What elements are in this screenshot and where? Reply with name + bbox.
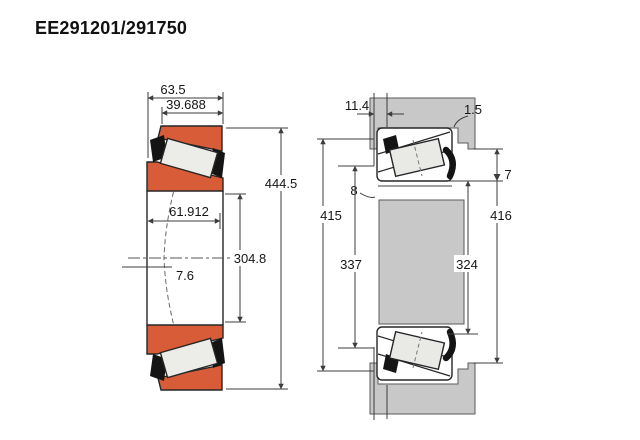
mounted-bearing-top xyxy=(377,128,453,181)
mounting-arrangement: 11.4 1.5 8 415 337 xyxy=(316,93,517,420)
mounted-bearing-bottom xyxy=(377,327,453,380)
bearing-drawing: 63.5 39.688 61.912 304.8 444.5 7.6 xyxy=(0,0,640,440)
dim-housing-bore: 415 xyxy=(320,208,342,223)
dim-bore-diameter: 304.8 xyxy=(234,251,267,266)
dim-cone-width: 61.912 xyxy=(169,204,209,219)
dim-outer-diameter: 444.5 xyxy=(265,176,298,191)
bearing-datasheet-page: EE291201/291750 xyxy=(0,0,640,440)
dim-shaft-shoulder: 337 xyxy=(340,257,362,272)
dim-cup-width: 39.688 xyxy=(166,97,206,112)
dim-center-offset: 7.6 xyxy=(176,268,194,283)
page-title: EE291201/291750 xyxy=(35,18,187,39)
leader-shaft-fillet xyxy=(360,193,375,198)
dim-housing-fillet: 1.5 xyxy=(464,102,482,117)
dim-arrow-clearance xyxy=(494,174,501,181)
dim-shoulder-clearance: 7 xyxy=(504,167,511,182)
dim-housing-shoulder: 416 xyxy=(490,208,512,223)
dim-axial-offset: 11.4 xyxy=(345,98,369,113)
dim-backing-shoulder: 324 xyxy=(456,257,478,272)
dim-shaft-fillet: 8 xyxy=(350,183,357,198)
bearing-cross-section: 63.5 39.688 61.912 304.8 444.5 7.6 xyxy=(122,82,302,390)
shaft xyxy=(379,200,464,324)
dim-total-width: 63.5 xyxy=(160,82,185,97)
